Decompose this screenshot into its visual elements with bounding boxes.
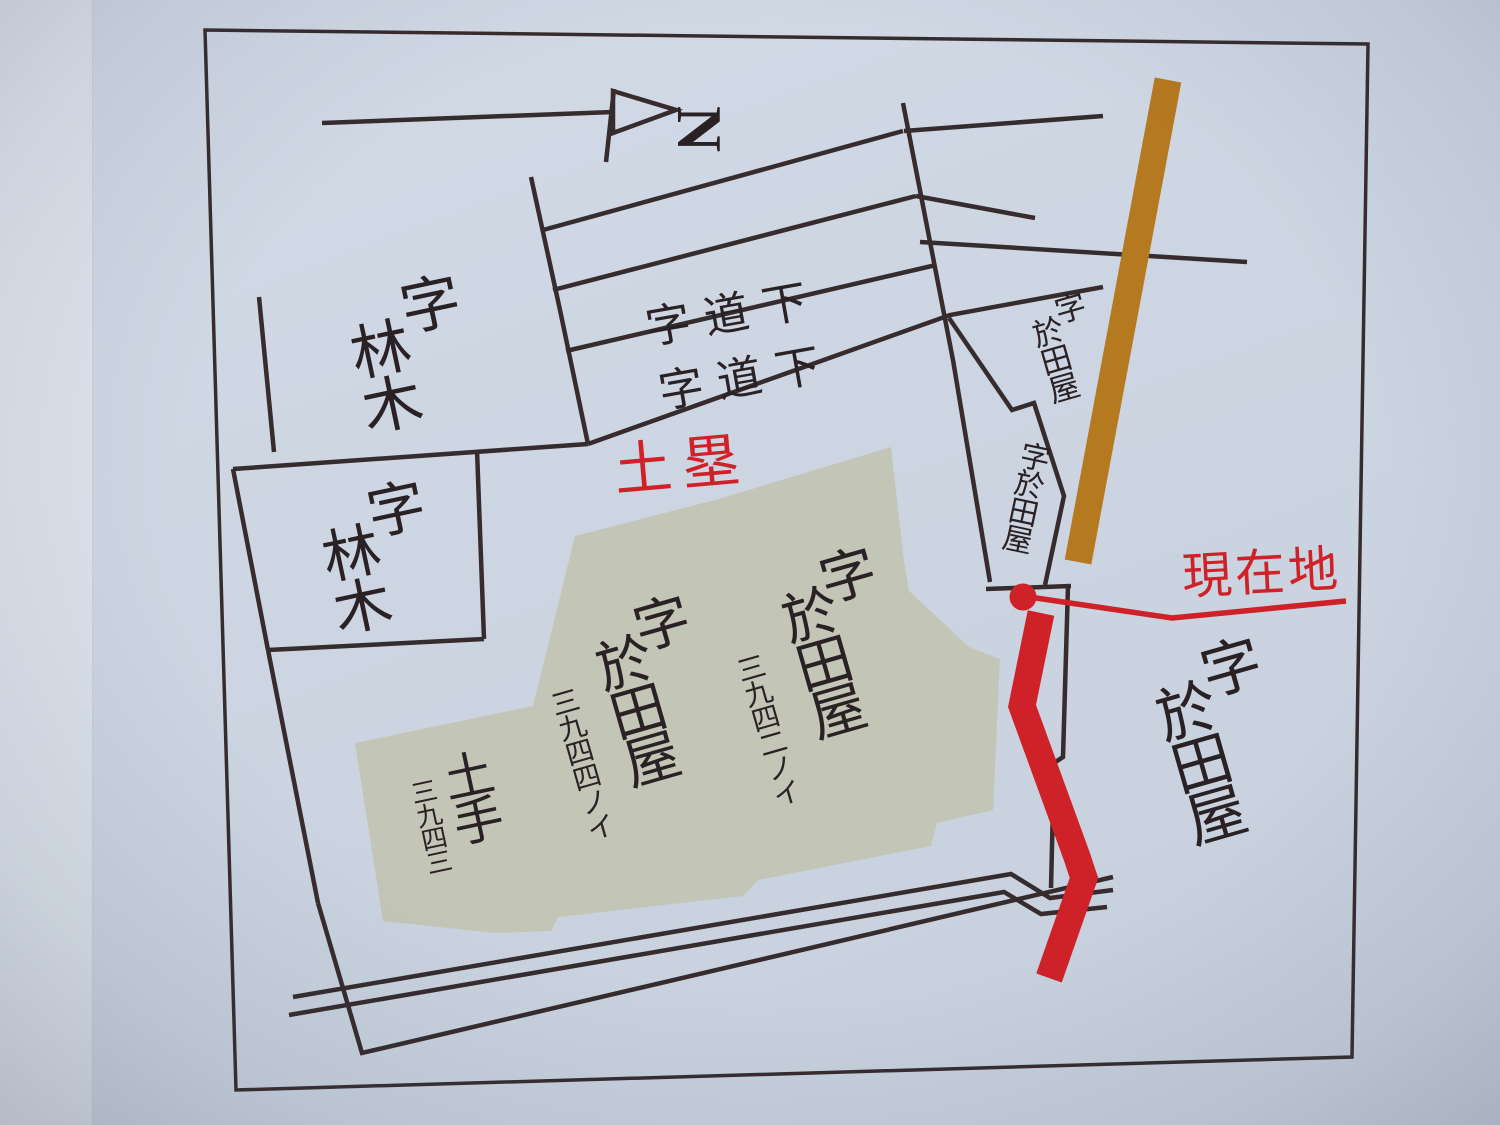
north-arrow-shaft: [322, 112, 613, 123]
brown-road: [1078, 80, 1168, 562]
red-route-road: [1022, 613, 1084, 978]
map-sign-photo: N 字林木 字林木 字道下 字道下 土塁 字於田屋 三九四二ノイ 字於田屋 三九…: [0, 0, 1500, 1125]
north-letter: N: [662, 106, 736, 152]
current-location-dot: [1010, 584, 1037, 611]
area-label-dorui: 土塁: [612, 431, 753, 501]
current-location-label: 現在地: [1181, 544, 1342, 602]
